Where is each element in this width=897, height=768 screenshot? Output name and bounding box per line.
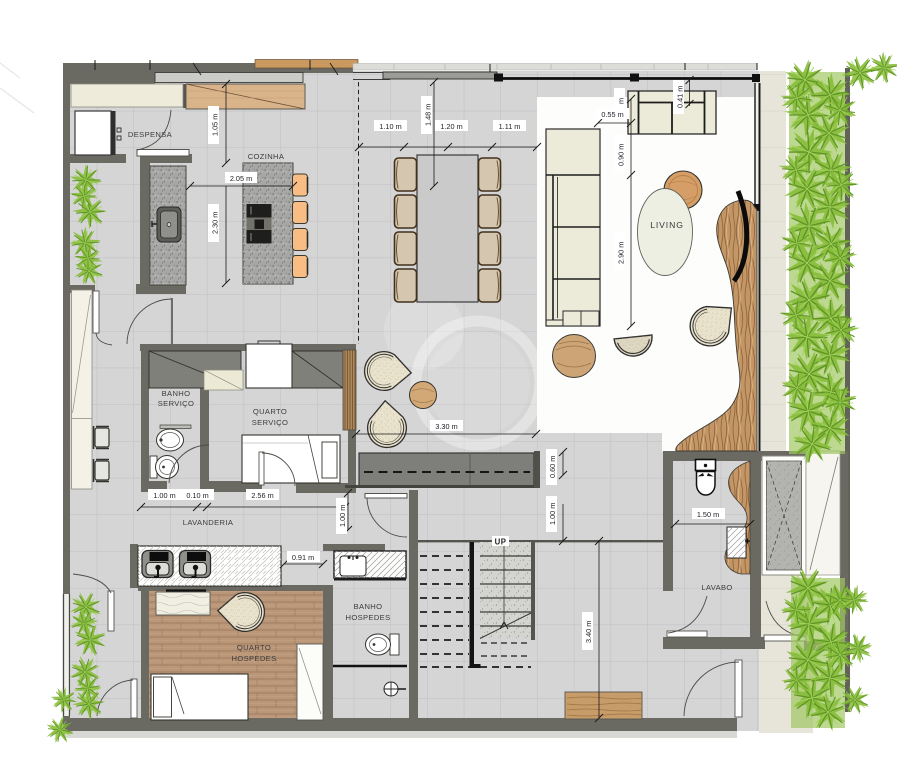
svg-text:0.90 m: 0.90 m	[617, 144, 626, 166]
svg-text:QUARTO: QUARTO	[237, 643, 271, 652]
svg-text:2.90 m: 2.90 m	[617, 242, 626, 264]
svg-text:3.30 m: 3.30 m	[435, 422, 457, 431]
svg-text:2.30 m: 2.30 m	[211, 212, 220, 234]
svg-text:BANHO: BANHO	[162, 389, 191, 398]
svg-text:0.41 m: 0.41 m	[676, 86, 685, 108]
svg-text:1.48 m: 1.48 m	[424, 104, 433, 126]
svg-text:0.60 m: 0.60 m	[548, 456, 557, 478]
svg-text:1.00 m: 1.00 m	[153, 491, 175, 500]
svg-text:0.55 m: 0.55 m	[601, 110, 623, 119]
svg-text:1.20 m: 1.20 m	[440, 122, 462, 131]
svg-text:1.00 m: 1.00 m	[548, 503, 557, 525]
svg-text:LIVING: LIVING	[650, 220, 684, 230]
svg-text:LAVANDERIA: LAVANDERIA	[183, 518, 234, 527]
svg-text:1.11 m: 1.11 m	[499, 122, 521, 131]
svg-text:SERVIÇO: SERVIÇO	[158, 399, 195, 408]
svg-text:0.91 m: 0.91 m	[292, 553, 314, 562]
svg-text:BANHO: BANHO	[354, 602, 383, 611]
svg-text:QUARTO: QUARTO	[253, 407, 287, 416]
svg-text:1.00 m: 1.00 m	[338, 505, 347, 527]
svg-text:3.40 m: 3.40 m	[584, 621, 593, 643]
svg-text:2.56 m: 2.56 m	[251, 491, 273, 500]
svg-text:SERVIÇO: SERVIÇO	[252, 418, 289, 427]
svg-text:HOSPEDES: HOSPEDES	[232, 654, 277, 663]
svg-text:1.50 m: 1.50 m	[697, 510, 719, 519]
svg-text:DESPENSA: DESPENSA	[128, 130, 173, 139]
svg-text:1.10 m: 1.10 m	[379, 122, 401, 131]
svg-text:0.10 m: 0.10 m	[186, 491, 208, 500]
svg-text:HOSPEDES: HOSPEDES	[346, 613, 391, 622]
svg-text:UP: UP	[495, 538, 507, 547]
svg-text:1.05 m: 1.05 m	[211, 114, 220, 136]
svg-text:m: m	[617, 98, 626, 104]
svg-text:COZINHA: COZINHA	[248, 152, 285, 161]
svg-text:LAVABO: LAVABO	[701, 583, 732, 592]
svg-text:2.05 m: 2.05 m	[230, 174, 252, 183]
